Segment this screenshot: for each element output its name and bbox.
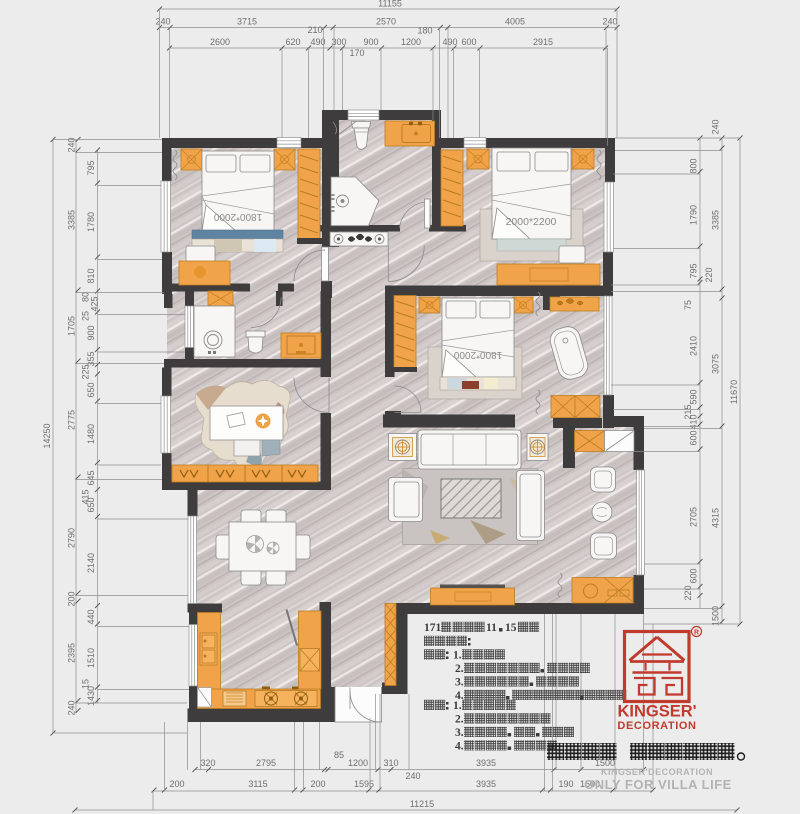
svg-text:1500: 1500	[711, 606, 721, 626]
svg-text:1510: 1510	[86, 648, 96, 668]
svg-text:3.: 3.	[455, 677, 464, 689]
svg-text:KINGSER': KINGSER'	[617, 703, 696, 721]
svg-text:3.: 3.	[455, 727, 464, 739]
svg-text:240: 240	[155, 17, 170, 27]
svg-text:2790: 2790	[67, 528, 77, 548]
svg-text:650: 650	[86, 382, 96, 397]
svg-text:85: 85	[334, 750, 344, 760]
svg-text:900: 900	[363, 37, 378, 47]
svg-text:11155: 11155	[378, 0, 402, 9]
svg-text:2.: 2.	[455, 714, 464, 726]
svg-text:3715: 3715	[237, 17, 257, 27]
svg-text:600: 600	[689, 568, 699, 583]
svg-text:2395: 2395	[67, 643, 77, 663]
svg-text:3935: 3935	[476, 758, 496, 768]
svg-text:440: 440	[86, 609, 96, 624]
svg-text:590: 590	[689, 389, 699, 404]
svg-text:25: 25	[81, 311, 91, 321]
svg-text:170: 170	[349, 48, 364, 58]
svg-text:2.: 2.	[455, 663, 464, 675]
svg-text:3385: 3385	[711, 210, 721, 230]
svg-text:310: 310	[383, 758, 398, 768]
svg-text:2795: 2795	[256, 758, 276, 768]
svg-text:4315: 4315	[711, 508, 721, 528]
svg-text:1800*2000: 1800*2000	[213, 211, 262, 222]
svg-text:2570: 2570	[376, 17, 396, 27]
svg-text:3075: 3075	[711, 354, 721, 374]
svg-text:R: R	[694, 630, 699, 637]
svg-text:4.: 4.	[455, 741, 464, 753]
svg-text:220: 220	[683, 585, 693, 600]
svg-text:75: 75	[683, 300, 693, 310]
svg-text:900: 900	[86, 325, 96, 340]
svg-text:650: 650	[86, 497, 96, 512]
svg-text:11215: 11215	[410, 799, 434, 809]
svg-text:1790: 1790	[689, 205, 699, 225]
svg-text:795: 795	[86, 160, 96, 175]
svg-text:200: 200	[310, 779, 325, 789]
svg-text:3935: 3935	[476, 779, 496, 789]
svg-text:425: 425	[90, 296, 100, 311]
svg-text:2705: 2705	[689, 507, 699, 527]
svg-text:410: 410	[689, 414, 699, 429]
svg-text:2000*2200: 2000*2200	[506, 216, 557, 228]
svg-text:2600: 2600	[210, 37, 230, 47]
svg-text:180: 180	[417, 26, 432, 36]
svg-text:14250: 14250	[42, 423, 52, 448]
svg-text:220: 220	[704, 267, 714, 282]
svg-text:11: 11	[486, 622, 497, 634]
svg-text:ONLY FOR VILLA LIFE: ONLY FOR VILLA LIFE	[584, 777, 732, 792]
svg-text:1.: 1.	[453, 650, 462, 662]
svg-text:240: 240	[602, 17, 617, 27]
svg-text:DECORATION: DECORATION	[617, 720, 696, 732]
svg-text:1200: 1200	[401, 37, 421, 47]
svg-text:3385: 3385	[67, 210, 77, 230]
svg-text:355: 355	[86, 351, 96, 366]
svg-text:1200: 1200	[348, 758, 368, 768]
svg-text:15: 15	[505, 622, 517, 634]
svg-text:1.: 1.	[453, 700, 462, 712]
svg-text:490: 490	[442, 37, 457, 47]
svg-text:2915: 2915	[533, 37, 553, 47]
svg-text:2410: 2410	[689, 336, 699, 356]
svg-text:795: 795	[689, 263, 699, 278]
svg-text:210: 210	[307, 25, 322, 35]
svg-text:600: 600	[461, 37, 476, 47]
svg-text:620: 620	[285, 37, 300, 47]
svg-text:3115: 3115	[248, 779, 267, 789]
svg-text:600: 600	[689, 430, 699, 445]
svg-text:320: 320	[200, 758, 215, 768]
svg-text:240: 240	[67, 700, 77, 715]
svg-text:200: 200	[169, 779, 184, 789]
svg-text:800: 800	[689, 158, 699, 173]
svg-text:1595: 1595	[354, 779, 374, 789]
svg-text:2140: 2140	[86, 553, 96, 573]
svg-text:11670: 11670	[729, 380, 739, 404]
svg-text:200: 200	[67, 591, 77, 606]
svg-text:1480: 1480	[86, 424, 96, 444]
svg-text:225: 225	[81, 364, 91, 379]
svg-text:KINGSER'DECORATION: KINGSER'DECORATION	[601, 767, 713, 777]
svg-text:190: 190	[558, 779, 573, 789]
svg-text:240: 240	[711, 119, 721, 134]
svg-text:1800*2000: 1800*2000	[453, 349, 502, 360]
svg-text:645: 645	[86, 470, 96, 485]
svg-text:171: 171	[424, 622, 442, 634]
svg-text:4005: 4005	[505, 17, 525, 27]
svg-text:1780: 1780	[86, 212, 96, 232]
svg-text:240: 240	[405, 771, 420, 781]
svg-text:1705: 1705	[67, 316, 77, 336]
svg-text:2775: 2775	[67, 410, 77, 430]
svg-text:810: 810	[86, 268, 96, 283]
